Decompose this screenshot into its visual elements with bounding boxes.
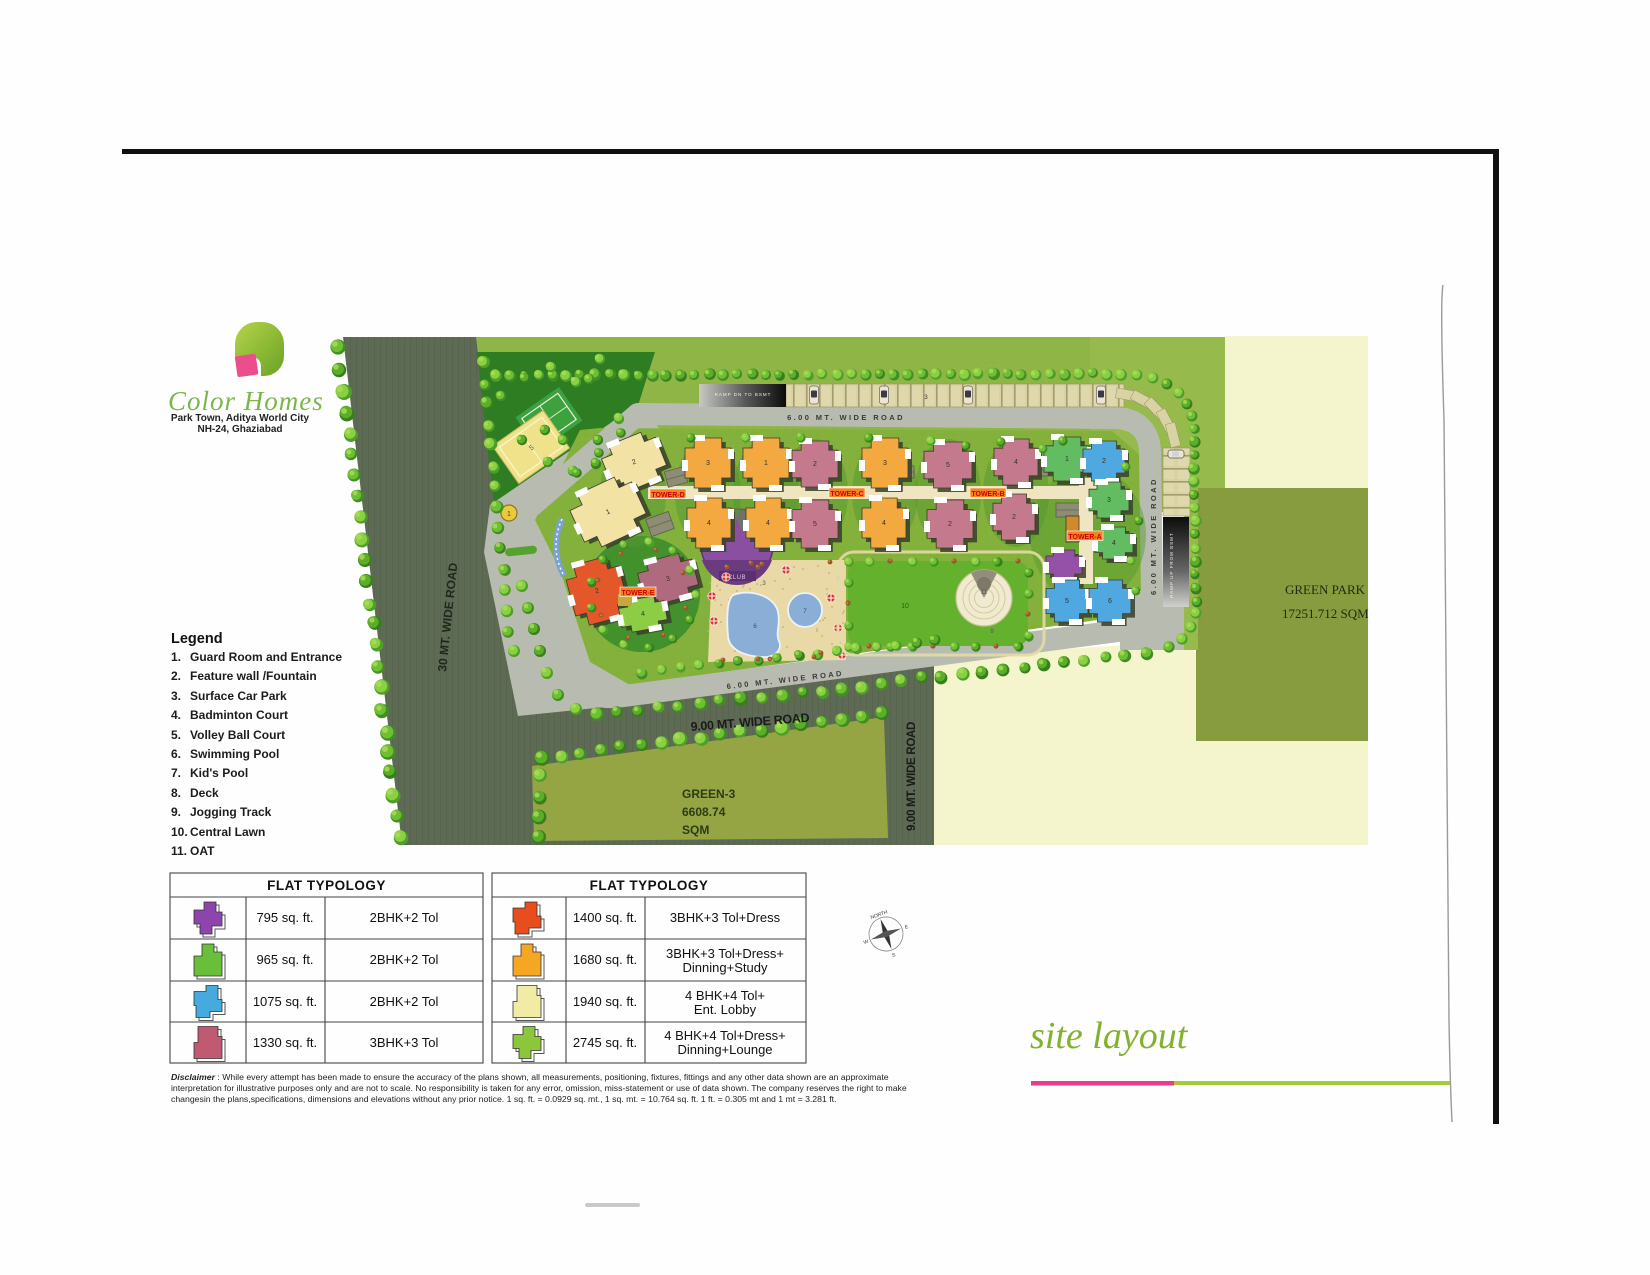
svg-text:1680 sq. ft.: 1680 sq. ft. — [573, 952, 637, 967]
svg-text:TOWER-D: TOWER-D — [651, 492, 684, 499]
svg-text:SQM: SQM — [682, 823, 709, 837]
svg-text:2: 2 — [813, 461, 817, 468]
svg-text:7.: 7. — [171, 766, 181, 780]
svg-text:10: 10 — [901, 603, 909, 610]
svg-text:Central Lawn: Central Lawn — [190, 825, 265, 839]
svg-text:TOWER-E: TOWER-E — [622, 590, 655, 597]
svg-text:9.00 MT. WIDE ROAD: 9.00 MT. WIDE ROAD — [906, 722, 918, 831]
svg-text:4: 4 — [707, 520, 711, 527]
svg-text:GREEN PARK: GREEN PARK — [1285, 582, 1366, 597]
svg-text:2: 2 — [948, 521, 952, 528]
svg-text:Dinning+Study: Dinning+Study — [683, 960, 768, 975]
svg-text:3BHK+3 Tol: 3BHK+3 Tol — [370, 1035, 439, 1050]
svg-text:2745 sq. ft.: 2745 sq. ft. — [573, 1035, 637, 1050]
svg-text:interpretation for illustrativ: interpretation for illustrative purposes… — [171, 1083, 907, 1093]
svg-text:Dinning+Lounge: Dinning+Lounge — [677, 1042, 772, 1057]
svg-text:965 sq. ft.: 965 sq. ft. — [256, 952, 313, 967]
svg-text:9.: 9. — [171, 805, 181, 819]
svg-text:3: 3 — [1107, 497, 1111, 504]
svg-text:1400 sq. ft.: 1400 sq. ft. — [573, 910, 637, 925]
svg-text:1: 1 — [507, 511, 511, 518]
svg-text:Legend: Legend — [171, 631, 223, 647]
svg-text:2BHK+2 Tol: 2BHK+2 Tol — [370, 952, 439, 967]
svg-text:FLAT TYPOLOGY: FLAT TYPOLOGY — [267, 878, 386, 893]
svg-text:1: 1 — [764, 460, 768, 467]
svg-text:GREEN-3: GREEN-3 — [682, 787, 736, 801]
svg-text:3: 3 — [706, 460, 710, 467]
svg-text:5: 5 — [946, 462, 950, 469]
svg-text:Guard Room and Entrance: Guard Room and Entrance — [190, 650, 342, 664]
svg-text:site layout: site layout — [1030, 1015, 1189, 1057]
svg-text:2: 2 — [1012, 514, 1016, 521]
svg-text:Deck: Deck — [190, 786, 219, 800]
svg-text:4: 4 — [1112, 540, 1116, 547]
svg-text:TOWER-A: TOWER-A — [1068, 534, 1101, 541]
svg-text:4: 4 — [882, 520, 886, 527]
svg-text:6608.74: 6608.74 — [682, 805, 726, 819]
svg-text:1.: 1. — [171, 650, 181, 664]
svg-text:3BHK+3 Tol+Dress+: 3BHK+3 Tol+Dress+ — [666, 946, 784, 961]
svg-text:6.00 MT. WIDE ROAD: 6.00 MT. WIDE ROAD — [1149, 477, 1158, 595]
svg-text:Color Homes: Color Homes — [168, 386, 324, 416]
svg-text:TOWER-B: TOWER-B — [971, 491, 1004, 498]
svg-text:Badminton Court: Badminton Court — [190, 708, 288, 722]
svg-text:4 BHK+4 Tol+: 4 BHK+4 Tol+ — [685, 988, 765, 1003]
svg-text:4.: 4. — [171, 708, 181, 722]
svg-text:5.: 5. — [171, 728, 181, 742]
svg-text:8.: 8. — [171, 786, 181, 800]
svg-text:6.: 6. — [171, 747, 181, 761]
svg-text:4 BHK+4 Tol+Dress+: 4 BHK+4 Tol+Dress+ — [664, 1028, 786, 1043]
svg-text:6.00 MT. WIDE ROAD: 6.00 MT. WIDE ROAD — [787, 413, 905, 422]
svg-text:795 sq. ft.: 795 sq. ft. — [256, 910, 313, 925]
svg-text:Feature wall /Fountain: Feature wall /Fountain — [190, 669, 317, 683]
svg-text:11: 11 — [981, 590, 988, 596]
svg-text:CLUB: CLUB — [728, 575, 746, 581]
svg-text:3: 3 — [883, 460, 887, 467]
svg-text:6: 6 — [1108, 598, 1112, 605]
svg-text:5: 5 — [1065, 598, 1069, 605]
svg-text:2.: 2. — [171, 669, 181, 683]
svg-text:4: 4 — [1014, 459, 1018, 466]
svg-text:Volley Ball Court: Volley Ball Court — [190, 728, 285, 742]
svg-text:Park Town, Aditya World City: Park Town, Aditya World City — [171, 413, 310, 424]
svg-text:3BHK+3 Tol+Dress: 3BHK+3 Tol+Dress — [670, 910, 781, 925]
svg-text:1330 sq. ft.: 1330 sq. ft. — [253, 1035, 317, 1050]
svg-text:11.: 11. — [171, 844, 187, 858]
svg-text:Surface Car Park: Surface Car Park — [190, 689, 287, 703]
svg-text:Jogging Track: Jogging Track — [190, 805, 272, 819]
svg-text:OAT: OAT — [190, 844, 215, 858]
svg-text:FLAT TYPOLOGY: FLAT TYPOLOGY — [590, 878, 709, 893]
svg-text:1940 sq. ft.: 1940 sq. ft. — [573, 994, 637, 1009]
svg-text:10.: 10. — [171, 825, 188, 839]
svg-text:RAMP UP FROM BSMT: RAMP UP FROM BSMT — [1169, 532, 1174, 598]
svg-text:1: 1 — [1065, 456, 1069, 463]
svg-text:Swimming Pool: Swimming Pool — [190, 747, 279, 761]
svg-text:3.: 3. — [171, 689, 181, 703]
svg-text:1075 sq. ft.: 1075 sq. ft. — [253, 994, 317, 1009]
svg-text:TOWER-C: TOWER-C — [830, 491, 863, 498]
svg-text:NH-24, Ghaziabad: NH-24, Ghaziabad — [197, 424, 282, 435]
svg-text:Ent. Lobby: Ent. Lobby — [694, 1002, 757, 1017]
svg-text:17251.712 SQM: 17251.712 SQM — [1282, 606, 1369, 621]
svg-text:5: 5 — [813, 521, 817, 528]
svg-text:Kid's Pool: Kid's Pool — [190, 766, 248, 780]
svg-text:Disclaimer : While every attem: Disclaimer : While every attempt has bee… — [171, 1072, 889, 1082]
svg-text:changesin the plans,specificat: changesin the plans,specifications, dime… — [171, 1094, 836, 1104]
svg-text:RAMP DN TO BSMT: RAMP DN TO BSMT — [715, 392, 772, 397]
svg-text:2: 2 — [1102, 458, 1106, 465]
svg-text:2BHK+2 Tol: 2BHK+2 Tol — [370, 910, 439, 925]
svg-text:4: 4 — [766, 520, 770, 527]
svg-text:2BHK+2 Tol: 2BHK+2 Tol — [370, 994, 439, 1009]
